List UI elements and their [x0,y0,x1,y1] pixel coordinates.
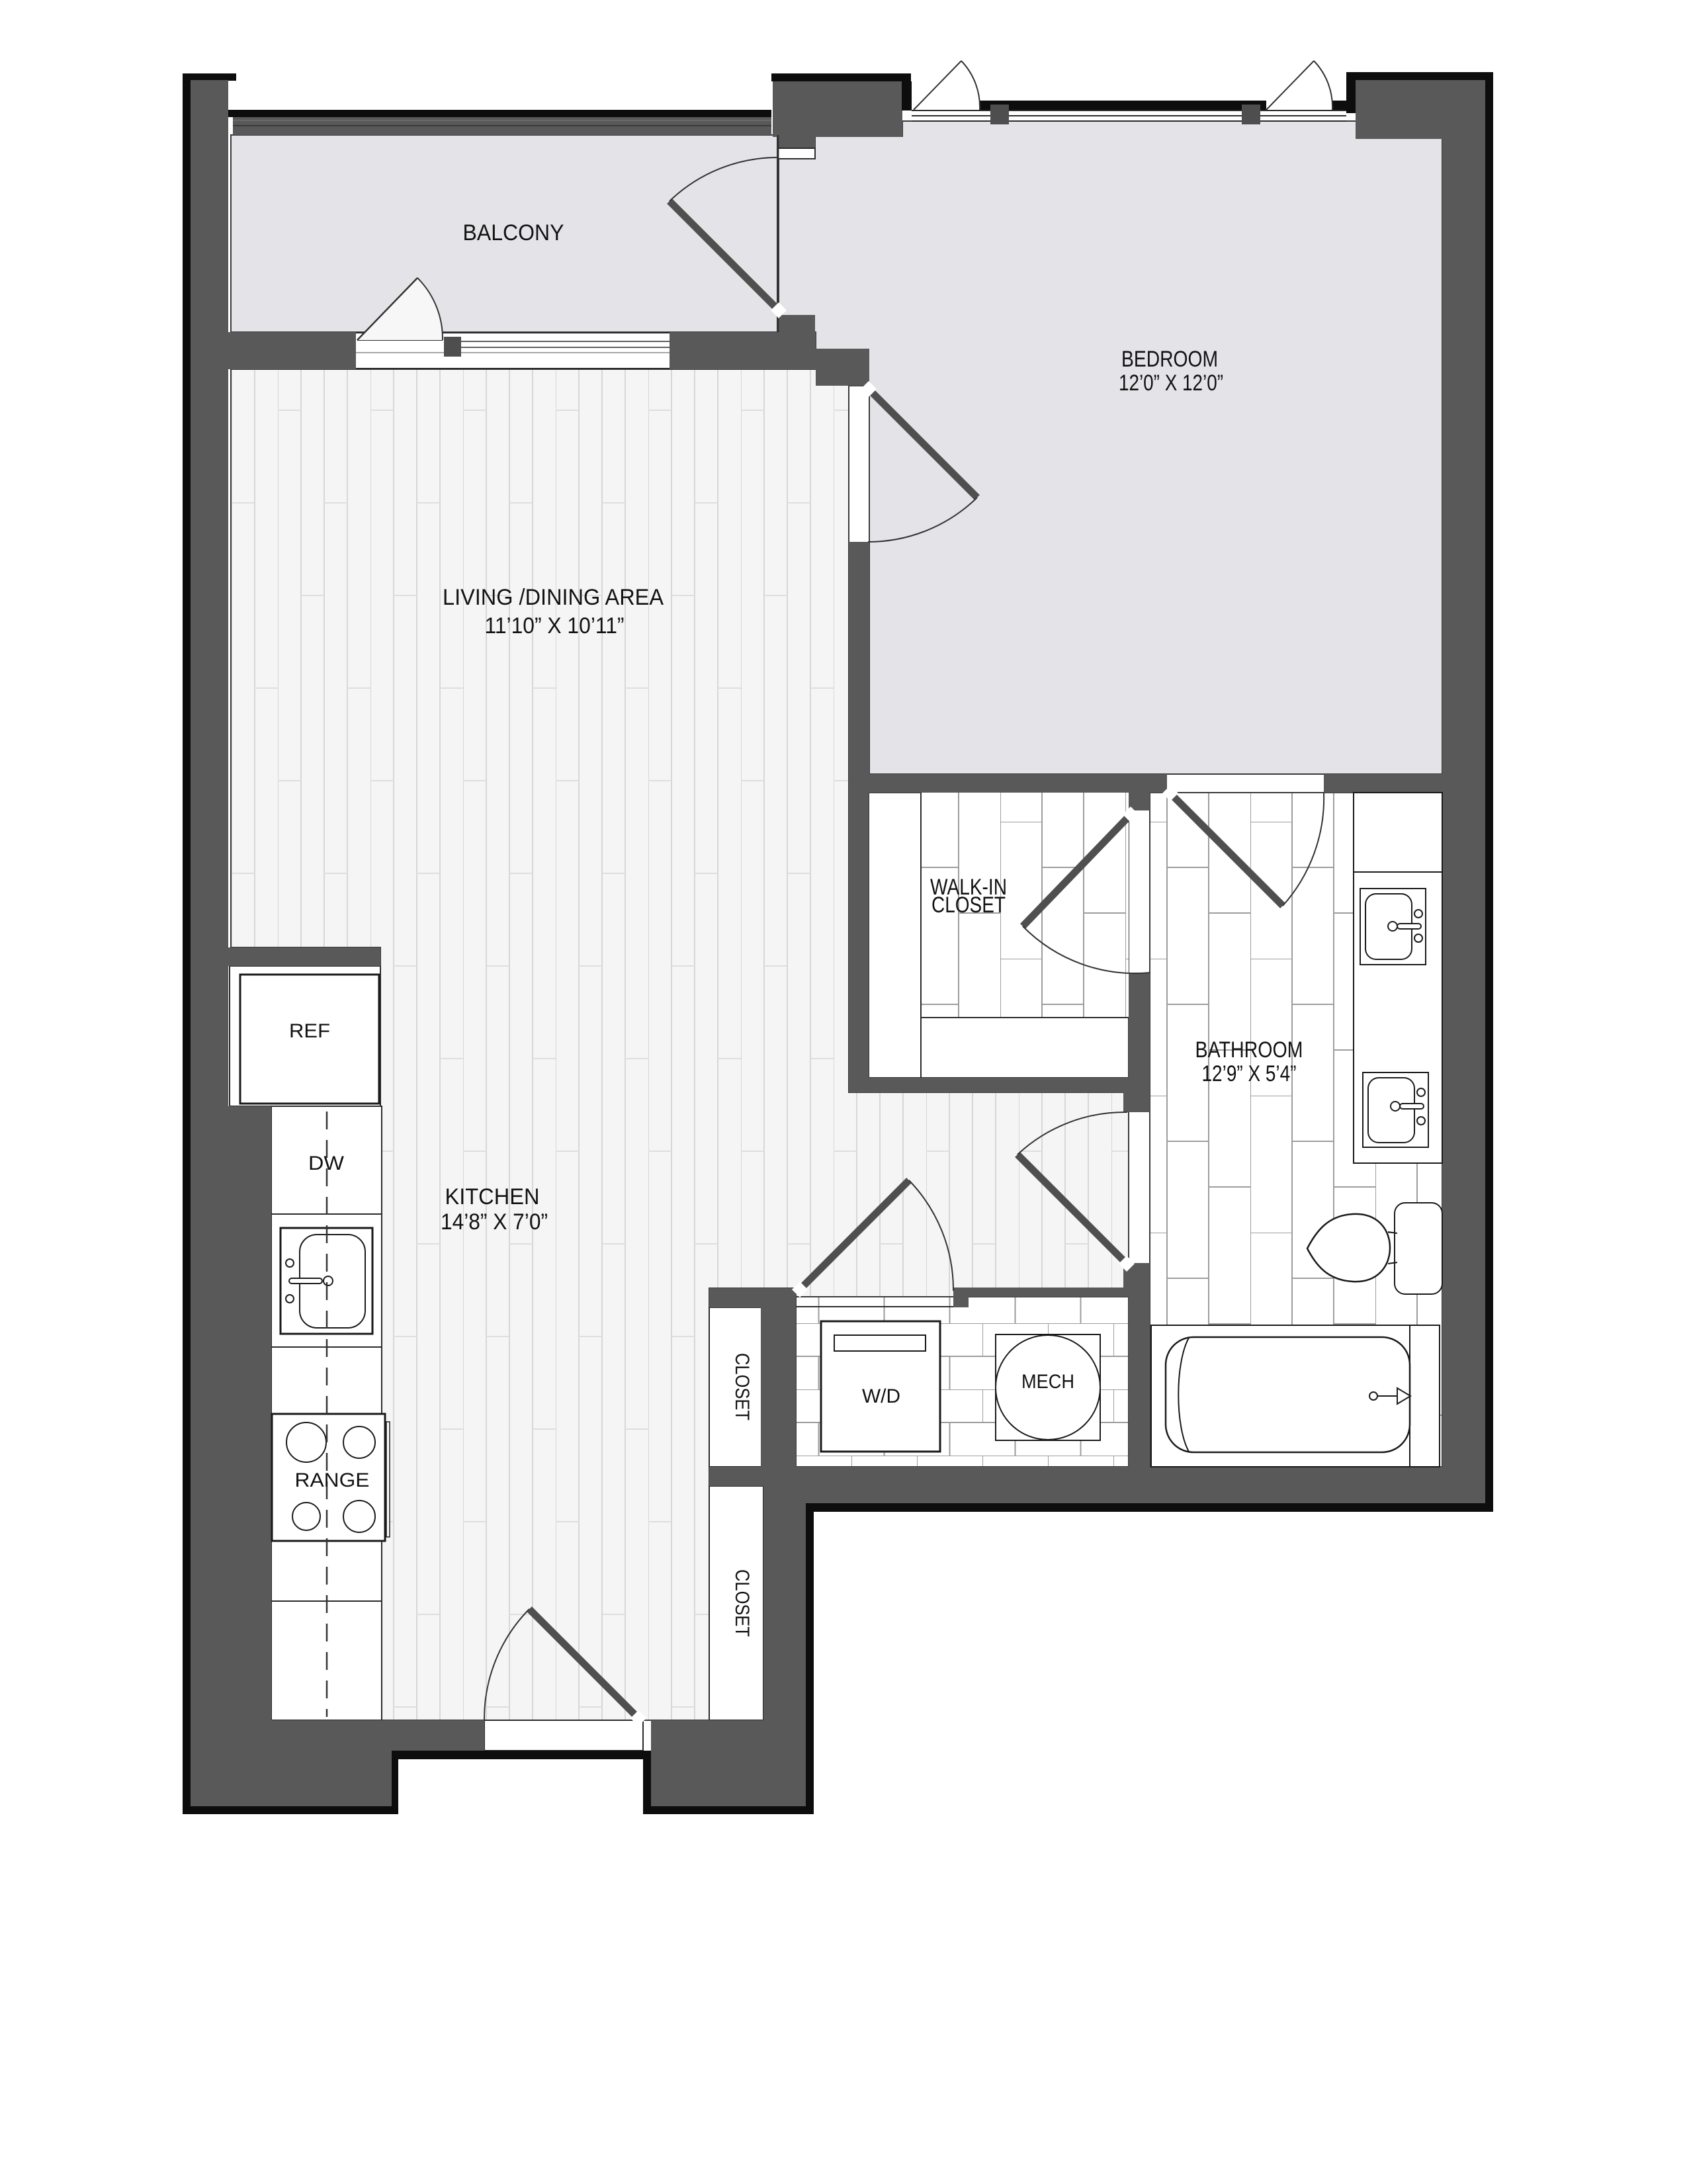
svg-text:11’10” X 10’11”: 11’10” X 10’11” [485,613,625,638]
svg-text:KITCHEN: KITCHEN [445,1184,540,1209]
svg-text:CLOSET: CLOSET [931,893,1006,918]
svg-text:MECH: MECH [1021,1371,1074,1393]
svg-text:RANGE: RANGE [295,1469,370,1491]
svg-text:CLOSET: CLOSET [731,1569,753,1637]
svg-text:REF: REF [289,1020,330,1042]
svg-text:12’0” X 12’0”: 12’0” X 12’0” [1119,371,1223,396]
svg-text:BEDROOM: BEDROOM [1121,347,1218,372]
svg-text:BALCONY: BALCONY [463,220,564,245]
svg-text:CLOSET: CLOSET [731,1353,753,1420]
svg-text:14’8” X 7’0”: 14’8” X 7’0” [441,1209,548,1235]
svg-text:LIVING /DINING AREA: LIVING /DINING AREA [443,585,664,610]
svg-text:12’9” X 5’4”: 12’9” X 5’4” [1202,1061,1297,1086]
svg-text:DW: DW [308,1153,345,1174]
svg-text:W/D: W/D [862,1385,900,1407]
svg-text:BATHROOM: BATHROOM [1195,1037,1303,1063]
